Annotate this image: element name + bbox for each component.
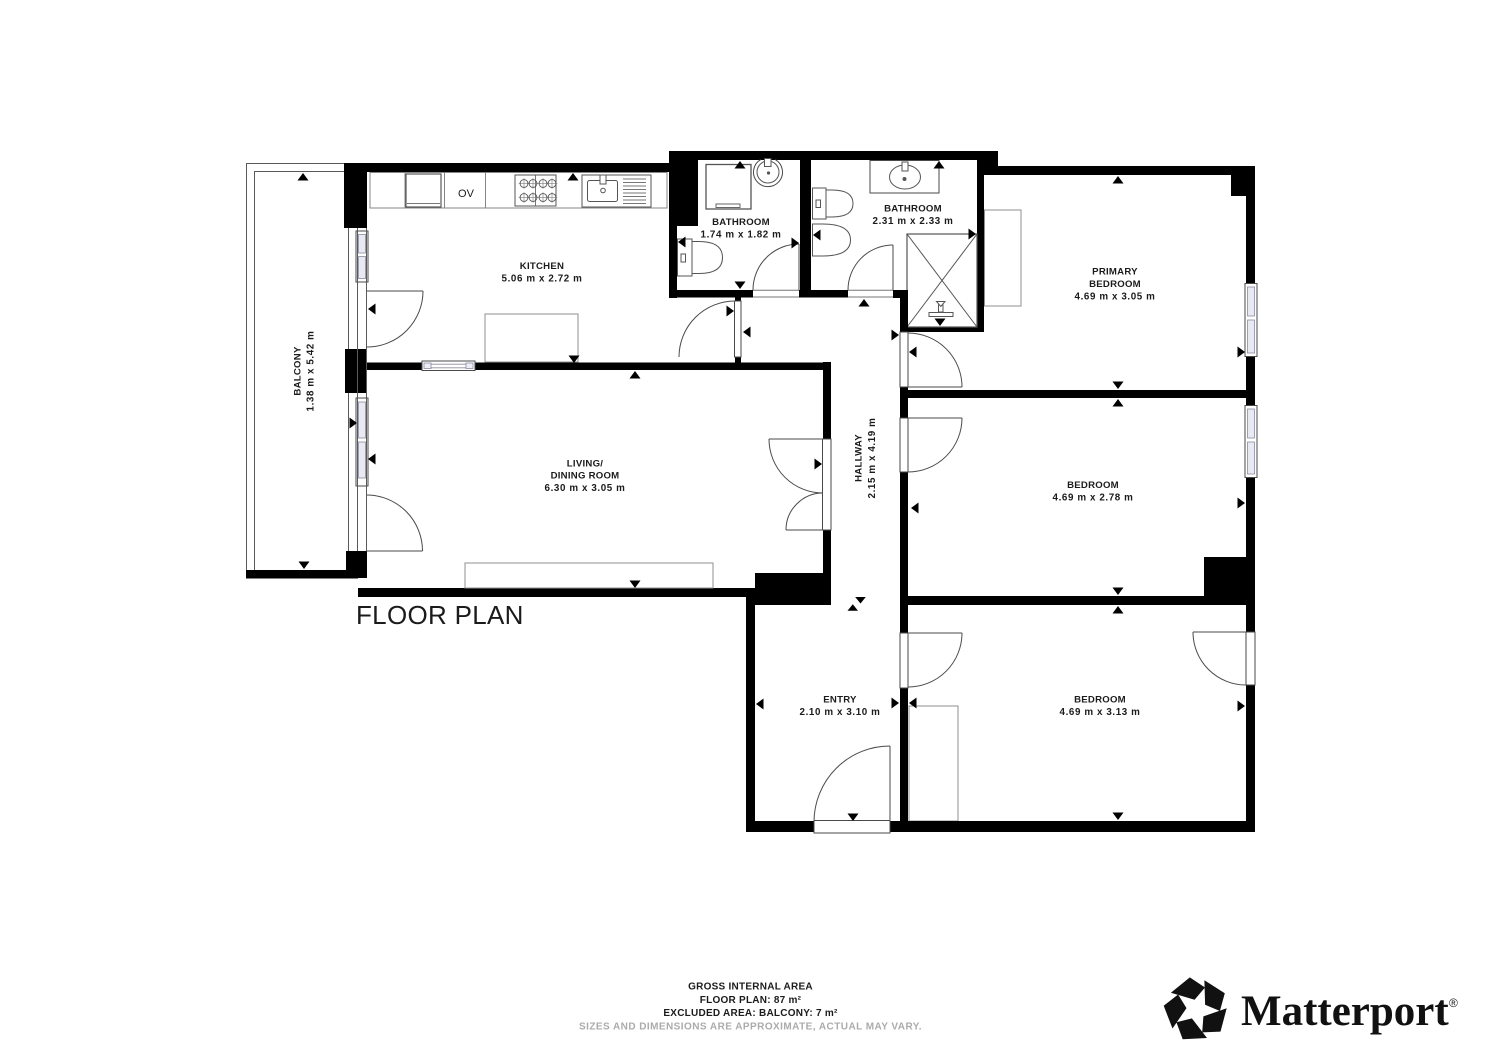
svg-text:2.15 m x 4.19 m: 2.15 m x 4.19 m [867,418,878,499]
svg-text:5.06 m x 2.72 m: 5.06 m x 2.72 m [502,274,583,285]
svg-text:HALLWAY: HALLWAY [854,434,865,482]
svg-text:LIVING/: LIVING/ [567,459,603,470]
svg-text:BEDROOM: BEDROOM [1067,480,1119,491]
svg-text:KITCHEN: KITCHEN [520,261,564,272]
svg-text:DINING ROOM: DINING ROOM [551,471,620,482]
svg-text:ENTRY: ENTRY [823,695,857,706]
svg-text:®: ® [1449,996,1458,1010]
svg-text:1.38 m x 5.42 m: 1.38 m x 5.42 m [306,331,317,412]
svg-text:Matterport: Matterport [1241,988,1449,1035]
svg-text:GROSS INTERNAL AREA: GROSS INTERNAL AREA [688,982,813,993]
svg-text:EXCLUDED AREA: BALCONY: 7 m²: EXCLUDED AREA: BALCONY: 7 m² [663,1008,838,1019]
svg-text:SIZES AND DIMENSIONS ARE APPRO: SIZES AND DIMENSIONS ARE APPROXIMATE, AC… [579,1021,922,1032]
svg-text:FLOOR PLAN: FLOOR PLAN [356,600,524,630]
svg-text:PRIMARY: PRIMARY [1092,267,1138,278]
svg-text:BATHROOM: BATHROOM [884,204,942,215]
svg-text:6.30 m x 3.05 m: 6.30 m x 3.05 m [545,483,626,494]
svg-text:BEDROOM: BEDROOM [1089,279,1141,290]
svg-text:OV: OV [458,188,475,200]
svg-text:FLOOR PLAN: 87 m²: FLOOR PLAN: 87 m² [700,995,802,1006]
svg-text:2.10 m x 3.10 m: 2.10 m x 3.10 m [800,707,881,718]
svg-text:1.74 m x 1.82 m: 1.74 m x 1.82 m [701,230,782,241]
svg-text:BALCONY: BALCONY [293,346,304,396]
svg-text:BEDROOM: BEDROOM [1074,695,1126,706]
svg-text:BATHROOM: BATHROOM [712,217,770,228]
svg-text:4.69 m x 3.05 m: 4.69 m x 3.05 m [1075,292,1156,303]
svg-text:4.69 m x 3.13 m: 4.69 m x 3.13 m [1060,707,1141,718]
svg-text:4.69 m x 2.78 m: 4.69 m x 2.78 m [1053,493,1134,504]
svg-text:2.31 m x 2.33 m: 2.31 m x 2.33 m [873,216,954,227]
